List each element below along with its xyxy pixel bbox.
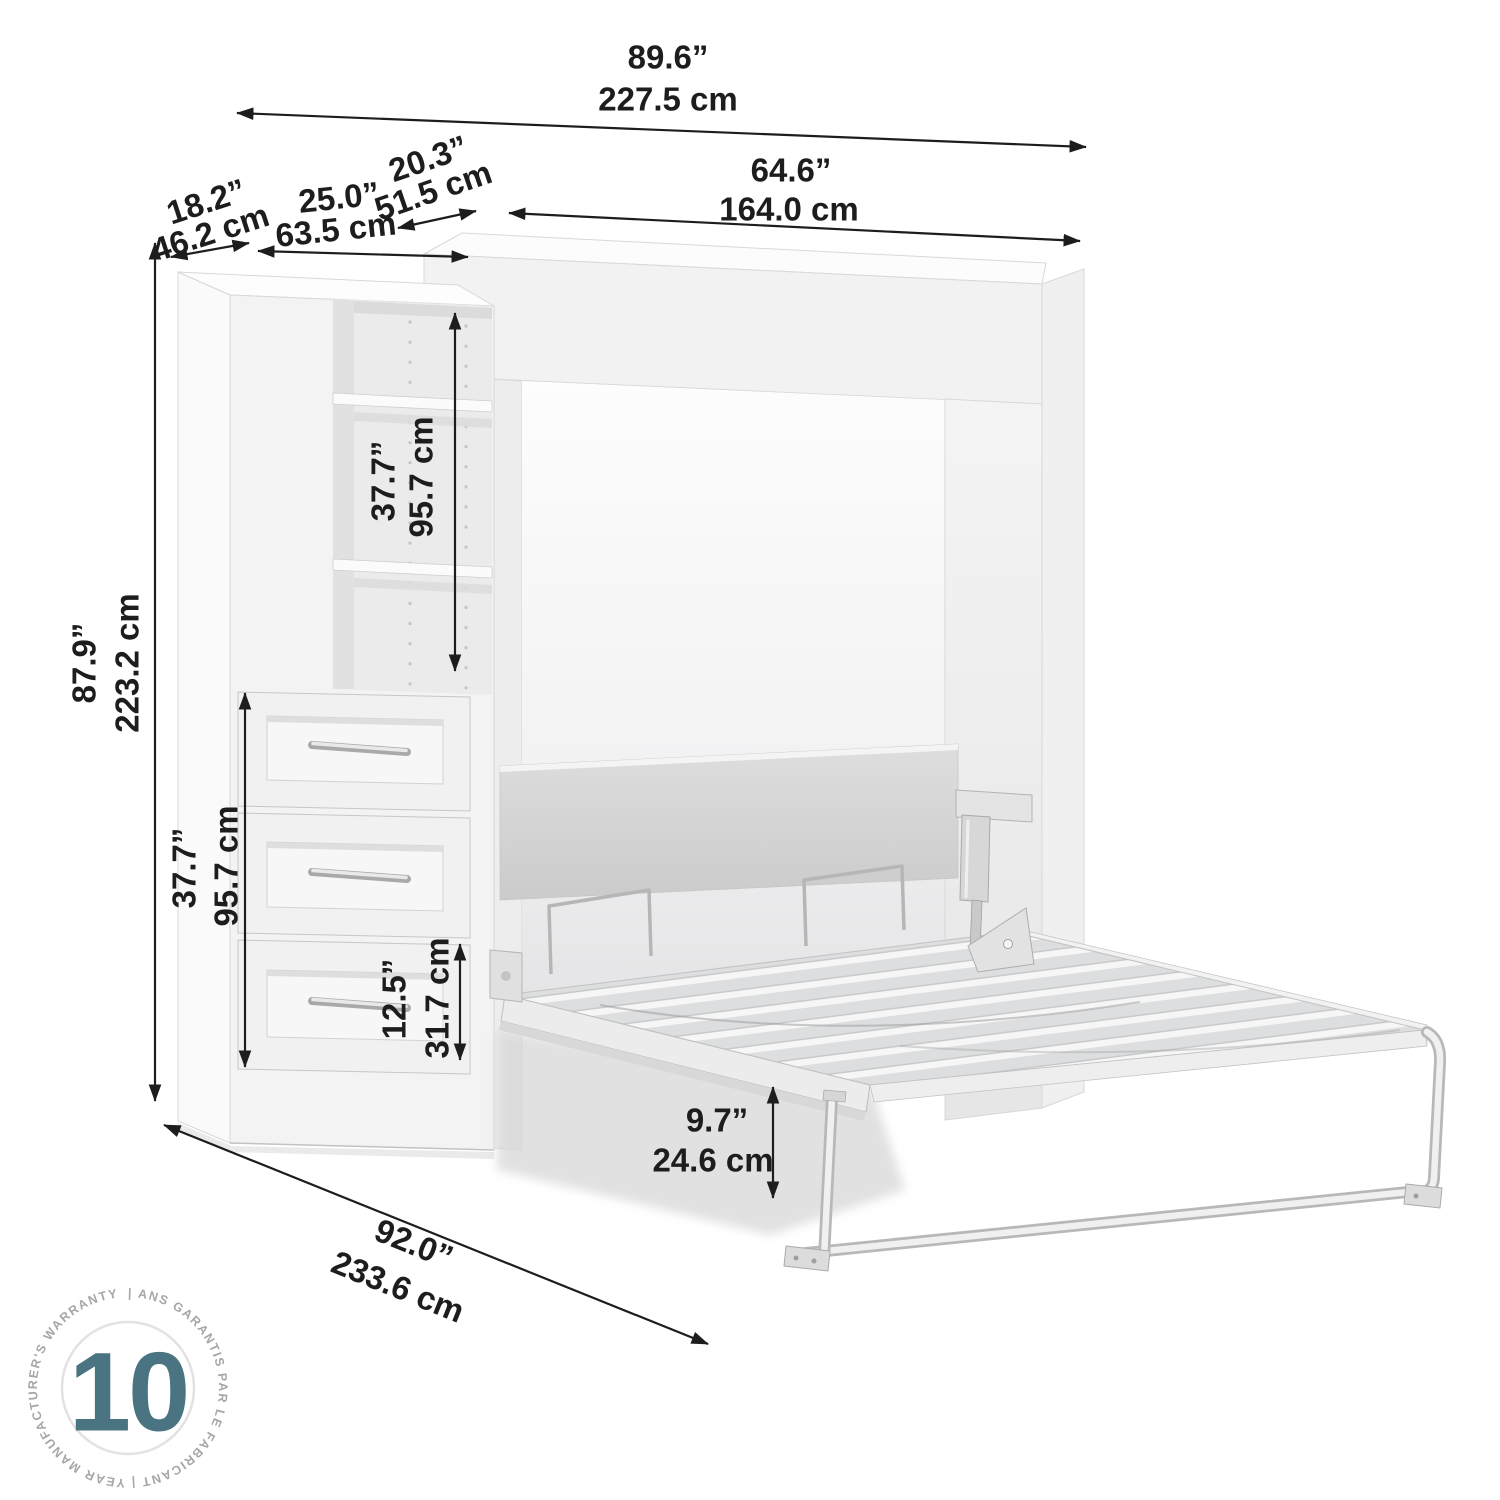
left-foot-pad	[784, 1246, 830, 1271]
pier-left-side	[178, 272, 230, 1143]
dim-clearance-cm: 24.6 cm	[652, 1142, 773, 1179]
dim-overall-height-in: 87.9”	[66, 623, 103, 704]
dim-bed-width-in: 64.6”	[751, 152, 832, 189]
dim-bed-width-cm: 164.0 cm	[719, 191, 858, 228]
right-foot-pad	[1404, 1184, 1442, 1208]
dim-bottom-drawer-cm: 31.7 cm	[419, 937, 456, 1058]
piston-cylinder	[960, 815, 990, 902]
dim-drawer-height-in: 37.7”	[166, 828, 203, 909]
cabinet-back-panel	[522, 381, 945, 1030]
shelf-interior-side-wall	[333, 299, 354, 689]
dim-line-overall-width	[237, 113, 1086, 147]
warranty-years: 10	[69, 1330, 188, 1455]
dim-overall-width-in: 89.6”	[628, 39, 709, 76]
dim-bottom-drawer-in: 12.5”	[376, 959, 413, 1040]
dim-shelf-height-cm: 95.7 cm	[403, 416, 440, 537]
dim-clearance-in: 9.7”	[686, 1102, 748, 1139]
drawer-middle	[238, 813, 470, 938]
left-pivot-hardware	[490, 950, 522, 1002]
dim-drawer-height-cm: 95.7 cm	[208, 805, 245, 926]
dim-overall-height-cm: 223.2 cm	[109, 593, 146, 732]
warranty-badge: 10 | ANS GARANTIS PAR LE FABRICANT | YEA…	[26, 1286, 230, 1490]
drawer-top	[238, 692, 470, 811]
dim-pier-width-cm: 63.5 cm	[274, 205, 398, 254]
murphy-bed-dimension-diagram: 89.6” 227.5 cm 64.6” 164.0 cm 20.3” 51.5…	[0, 0, 1500, 1500]
dim-overall-width-cm: 227.5 cm	[598, 81, 737, 118]
left-leg-mount	[823, 1090, 846, 1102]
dim-shelf-height-in: 37.7”	[365, 441, 402, 522]
